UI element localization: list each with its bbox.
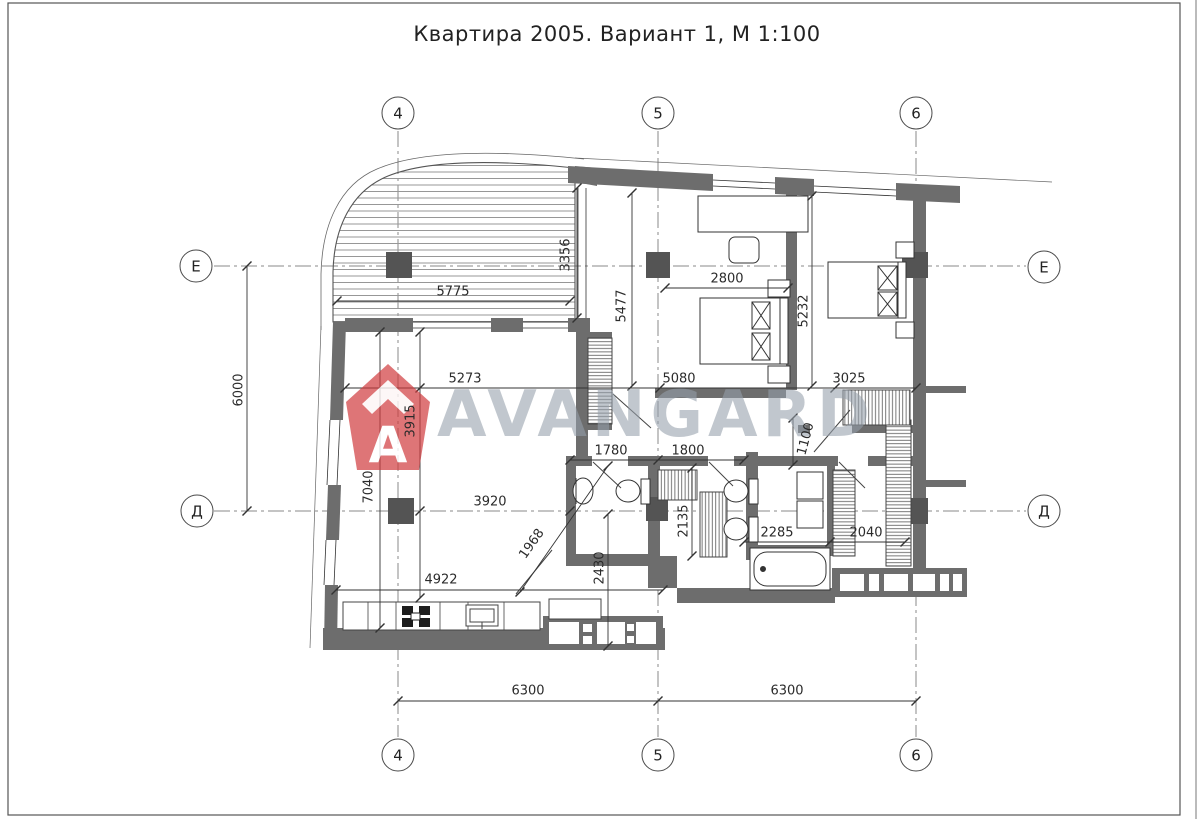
axis-bubble-4: 4 — [382, 97, 415, 130]
dimension-label: 5080 — [662, 372, 695, 387]
wardrobe-dressing-right — [886, 420, 911, 566]
dimension-label: 3356 — [559, 238, 574, 271]
kitchen-counter — [343, 602, 540, 630]
dimension-label: 2285 — [760, 526, 793, 541]
laundry-column — [700, 492, 727, 557]
dimension-label: 2040 — [849, 526, 882, 541]
dimension-label: 6300 — [511, 684, 544, 699]
dimension-label: 2800 — [710, 272, 743, 287]
nightstand — [896, 322, 914, 338]
bedroom2-furniture — [828, 242, 914, 338]
dimension-label: 5775 — [436, 285, 469, 300]
balcony — [321, 153, 597, 330]
dimension-label: 3920 — [473, 495, 506, 510]
drawing-title: Квартира 2005. Вариант 1, М 1:100 — [367, 22, 867, 46]
dimension-label: 4922 — [424, 573, 457, 588]
dimension-label: 7040 — [362, 470, 377, 503]
toilet-3 — [724, 517, 758, 542]
dimension-label: 2135 — [677, 504, 692, 537]
bed-1 — [700, 298, 788, 364]
axis-bubble-6: 6 — [900, 739, 933, 772]
kitchen-sink — [466, 605, 498, 629]
dimension-label: 2430 — [593, 551, 608, 584]
table — [549, 599, 601, 619]
toilet-1 — [616, 479, 650, 504]
axis-bubble-Е: Е — [180, 250, 213, 283]
drawing-sheet: A Квартира 2005. Вариант 1, М 1:100 AVAN… — [0, 0, 1200, 819]
axis-bubble-Е: Е — [1028, 251, 1061, 284]
axis-bubble-5: 5 — [642, 739, 675, 772]
cabinet — [797, 501, 823, 528]
axis-bubble-6: 6 — [900, 97, 933, 130]
dimension-label: 3025 — [832, 372, 865, 387]
cabinet — [797, 472, 823, 499]
axis-bubble-5: 5 — [642, 97, 675, 130]
nightstand — [896, 242, 914, 258]
axis-bubble-Д: Д — [181, 495, 214, 528]
chair — [729, 237, 759, 263]
dimension-label: 6000 — [232, 373, 247, 406]
masonry-openings — [840, 574, 962, 591]
bathtub — [750, 548, 830, 590]
axis-bubble-4: 4 — [382, 739, 415, 772]
dimension-label: 1780 — [594, 444, 627, 459]
dimension-label: 5477 — [615, 289, 630, 322]
watermark-logo-letter: A — [369, 416, 408, 474]
axis-bubble-Д: Д — [1028, 495, 1061, 528]
shelf-bathroom2 — [658, 470, 697, 500]
dimension-label: 1800 — [671, 444, 704, 459]
dimension-label: 5232 — [797, 294, 812, 327]
desk — [698, 196, 808, 232]
dimension-label: 5273 — [448, 372, 481, 387]
dimension-label: 3915 — [404, 404, 419, 437]
wardrobe-dressing-left — [833, 470, 855, 556]
dimension-label: 6300 — [770, 684, 803, 699]
